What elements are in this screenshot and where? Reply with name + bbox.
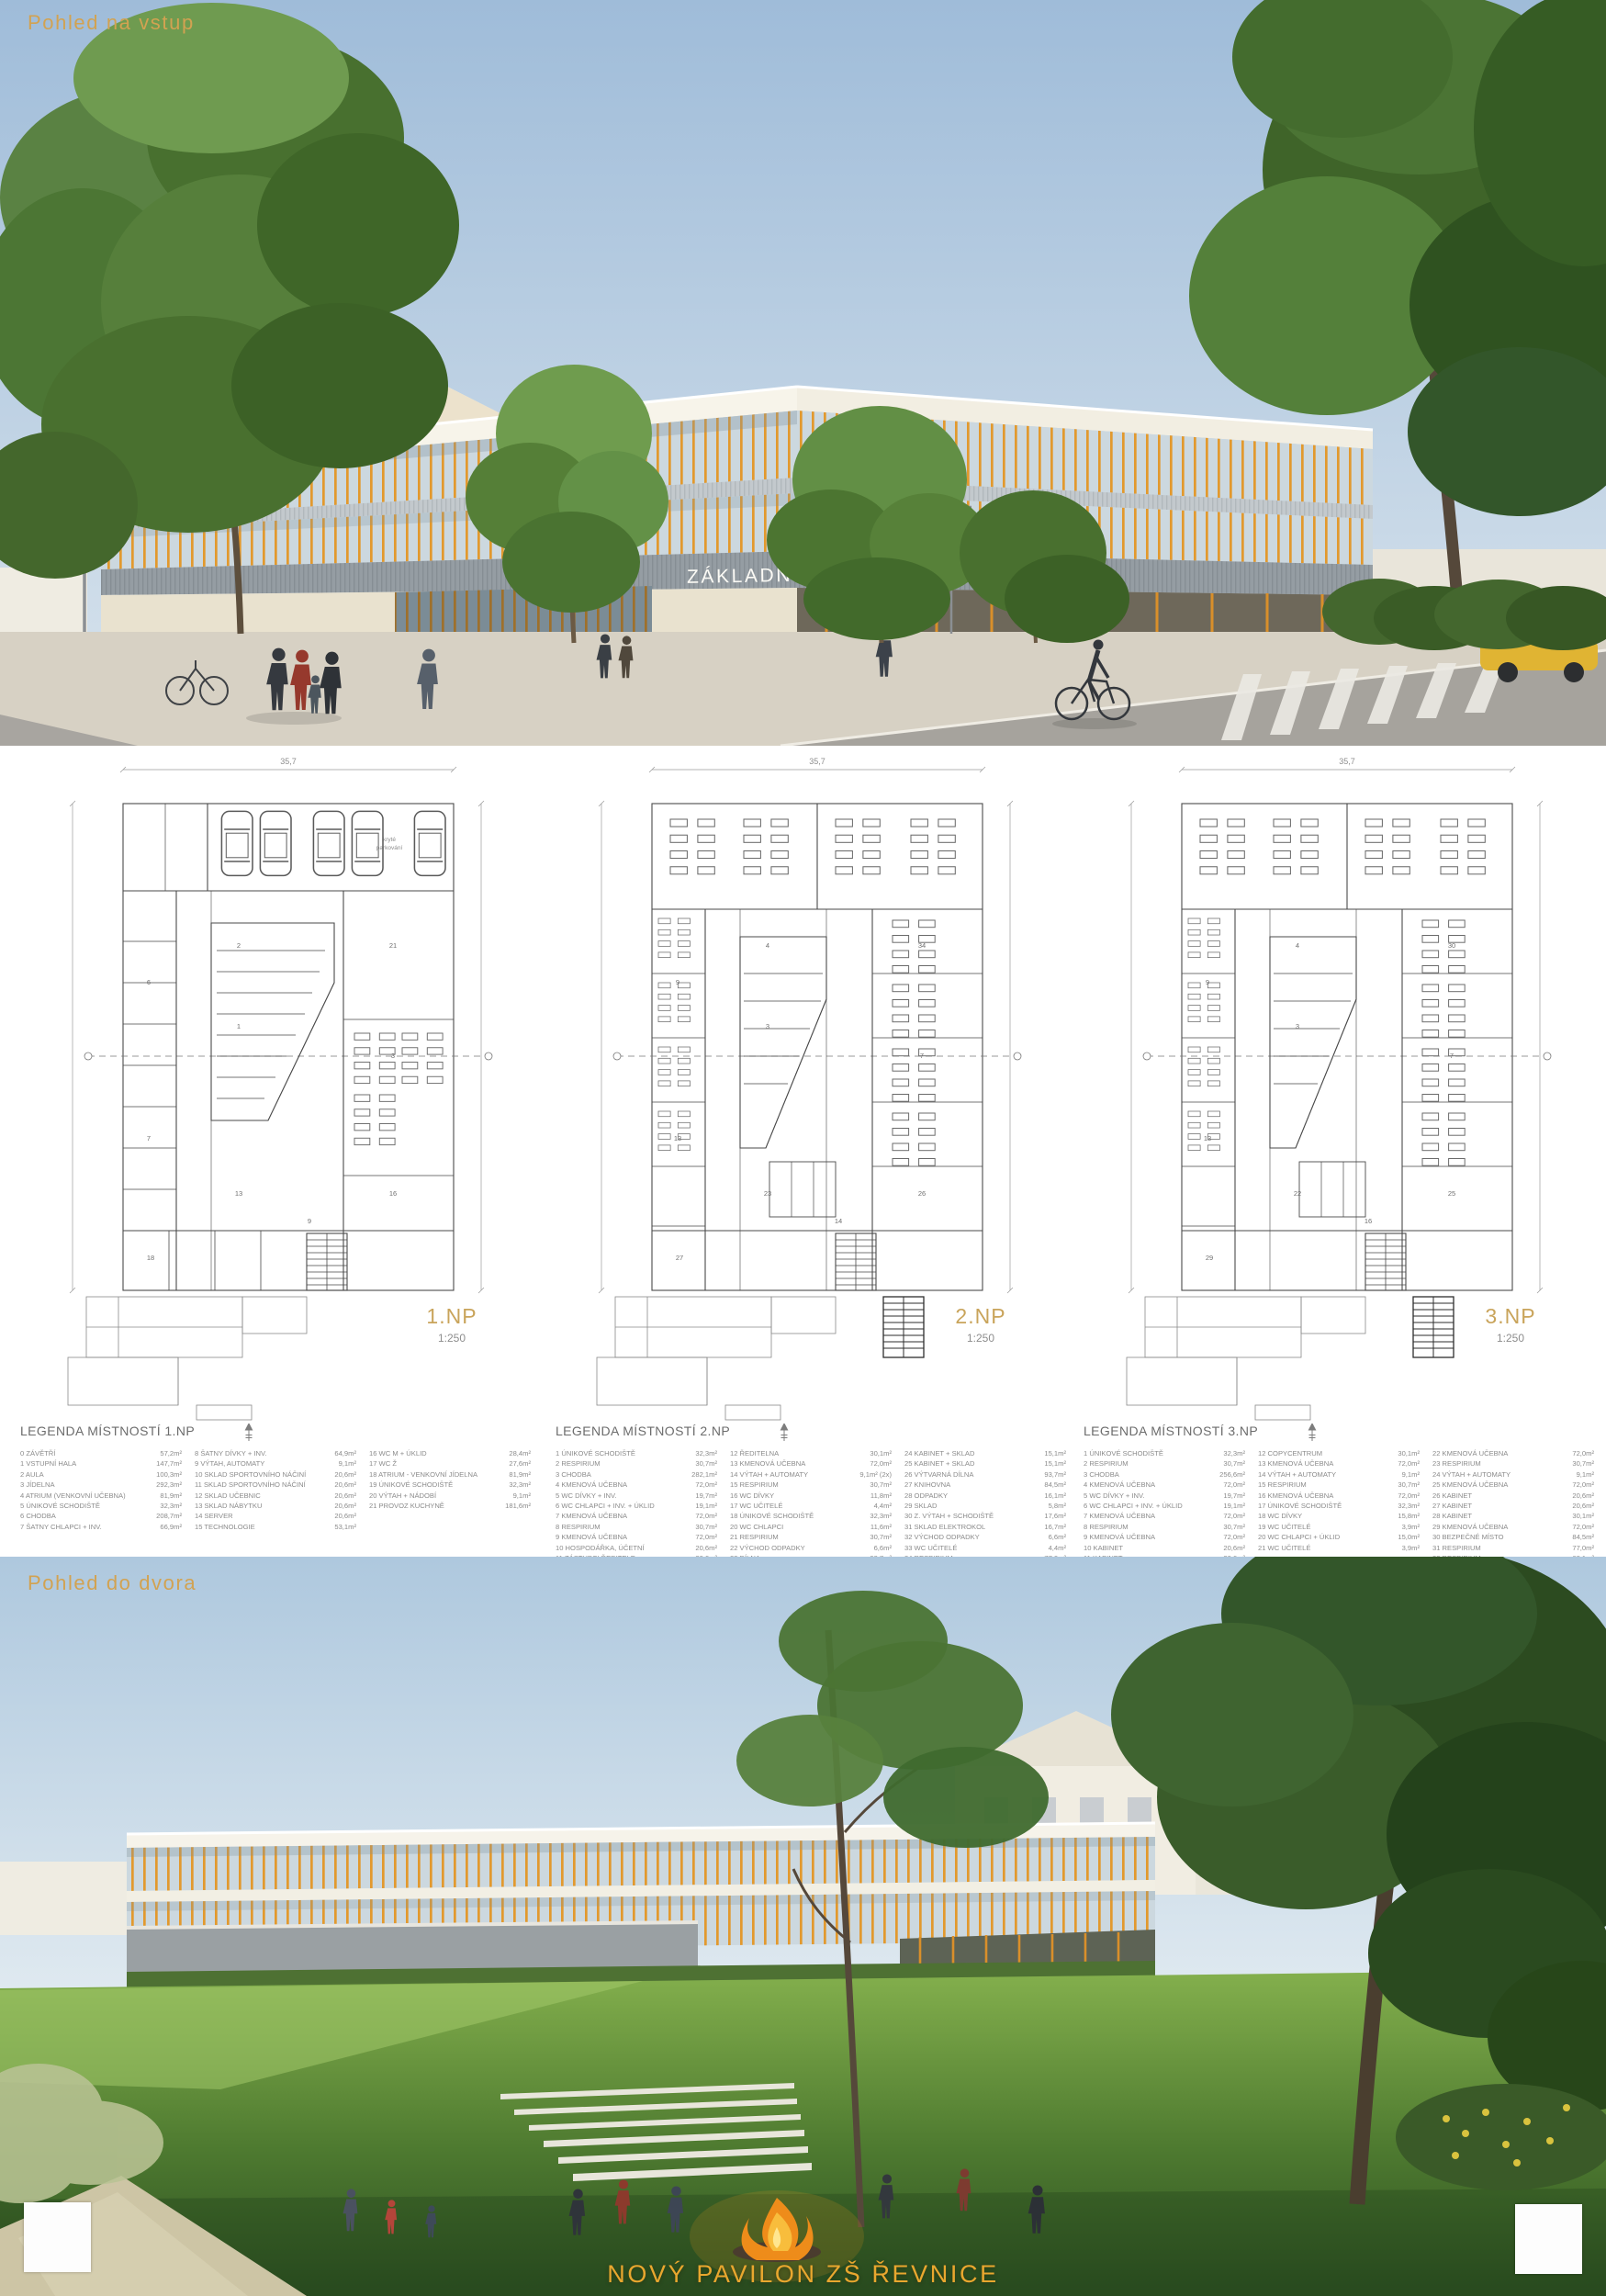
legend-row: 16 WC M + ÚKLID28,4m² — [369, 1448, 531, 1458]
legend-row: 6 CHODBA208,7m² — [20, 1511, 182, 1521]
legend-row: 8 RESPIRIUM30,7m² — [556, 1522, 717, 1532]
legend-row: 6 WC CHLAPCI + INV. + ÚKLID19,1m² — [556, 1501, 717, 1511]
room-number: 1 — [237, 1022, 241, 1030]
legend-row: 12 ŘEDITELNA30,1m² — [730, 1448, 892, 1458]
flower-bush — [1396, 2084, 1606, 2190]
legend-row: 10 SKLAD SPORTOVNÍHO NÁČINÍ20,6m² — [195, 1469, 356, 1480]
legend-row: 3 CHODBA282,1m² — [556, 1469, 717, 1480]
legend-row: 4 KMENOVÁ UČEBNA72,0m² — [1084, 1480, 1245, 1490]
room-number: 29 — [1206, 1254, 1213, 1262]
legend-row: 21 WC UČITELÉ3,9m² — [1258, 1543, 1420, 1553]
svg-text:parkování: parkování — [376, 845, 403, 851]
room-number: 3 — [1296, 1022, 1299, 1030]
legend-row: 15 TECHNOLOGIE53,1m² — [195, 1522, 356, 1532]
legend-row: 31 RESPIRIUM77,0m² — [1432, 1543, 1594, 1553]
room-number: 9 — [308, 1217, 311, 1225]
legend-column: 24 KABINET + SKLAD15,1m²25 KABINET + SKL… — [904, 1448, 1066, 1563]
legend-row: 17 WC Ž27,6m² — [369, 1458, 531, 1469]
room-number: 22 — [1294, 1189, 1301, 1198]
legend-row: 11 SKLAD SPORTOVNÍHO NÁČINÍ20,6m² — [195, 1480, 356, 1490]
legend-row: 9 KMENOVÁ UČEBNA72,0m² — [556, 1532, 717, 1542]
legend-row: 26 KABINET20,6m² — [1432, 1491, 1594, 1501]
dimension-label: 35,7 — [280, 757, 297, 766]
hedge-right — [1322, 579, 1606, 650]
legend-row: 13 KMENOVÁ UČEBNA72,0m² — [730, 1458, 892, 1469]
room-number: 4 — [766, 941, 769, 950]
legend-row: 24 VÝTAH + AUTOMATY9,1m² — [1432, 1469, 1594, 1480]
legend-row: 33 WC UČITELÉ4,4m² — [904, 1543, 1066, 1553]
legend-row: 7 KMENOVÁ UČEBNA72,0m² — [556, 1511, 717, 1521]
legend-row: 3 CHODBA256,6m² — [1084, 1469, 1245, 1480]
room-number: 18 — [147, 1254, 154, 1262]
legend-row: 28 KABINET30,1m² — [1432, 1511, 1594, 1521]
north-arrow-icon — [242, 1424, 255, 1442]
room-number: 27 — [676, 1254, 683, 1262]
room-number: 21 — [389, 941, 397, 950]
project-title: NOVÝ PAVILON ZŠ ŘEVNICE — [0, 2260, 1606, 2289]
legend-row: 9 VÝTAH, AUTOMATY9,1m² — [195, 1458, 356, 1469]
legend-row: 22 KMENOVÁ UČEBNA72,0m² — [1432, 1448, 1594, 1458]
legend-row: 13 KMENOVÁ UČEBNA72,0m² — [1258, 1458, 1420, 1469]
legend-row: 21 PROVOZ KUCHYNĚ181,6m² — [369, 1501, 531, 1511]
legend-row: 8 RESPIRIUM30,7m² — [1084, 1522, 1245, 1532]
legend-column: 1 ÚNIKOVÉ SCHODIŠTĚ32,3m²2 RESPIRIUM30,7… — [556, 1448, 717, 1563]
legend-column: 12 COPYCENTRUM30,1m²13 KMENOVÁ UČEBNA72,… — [1258, 1448, 1420, 1563]
legend-row: 10 HOSPODÁŘKA, ÚČETNÍ20,6m² — [556, 1543, 717, 1553]
room-number: 13 — [235, 1189, 242, 1198]
legend-row: 27 KABINET20,6m² — [1432, 1501, 1594, 1511]
presentation-board: Pohled na vstup — [0, 0, 1606, 2296]
room-number: 7 — [147, 1134, 151, 1142]
legend-row: 1 ÚNIKOVÉ SCHODIŠTĚ32,3m² — [556, 1448, 717, 1458]
legend-row: 18 ÚNIKOVÉ SCHODIŠTĚ32,3m² — [730, 1511, 892, 1521]
top-view-title: Pohled na vstup — [28, 11, 195, 35]
legend-column: 16 WC M + ÚKLID28,4m²17 WC Ž27,6m²18 ATR… — [369, 1448, 531, 1532]
legend-row: 17 WC UČITELÉ4,4m² — [730, 1501, 892, 1511]
legend-row: 19 ÚNIKOVÉ SCHODIŠTĚ32,3m² — [369, 1480, 531, 1490]
legend-2np: LEGENDA MÍSTNOSTÍ 2.NP 1 ÚNIKOVÉ SCHODIŠ… — [556, 1424, 1066, 1563]
room-number: 14 — [835, 1217, 842, 1225]
room-number: 16 — [1365, 1217, 1372, 1225]
legend-row: 7 ŠATNY CHLAPCI + INV.66,9m² — [20, 1522, 182, 1532]
legend-row: 8 ŠATNY DÍVKY + INV.64,9m² — [195, 1448, 356, 1458]
legend-row: 21 RESPIRIUM30,7m² — [730, 1532, 892, 1542]
room-number: 2 — [237, 941, 241, 950]
legend-3np: LEGENDA MÍSTNOSTÍ 3.NP 1 ÚNIKOVÉ SCHODIŠ… — [1084, 1424, 1594, 1563]
floor-plans-section: 35,7 kryté parkování 12367131618219 1.NP… — [0, 746, 1606, 1557]
legend-row: 18 ATRIUM - VENKOVNÍ JÍDELNA81,9m² — [369, 1469, 531, 1480]
legend-row: 30 BEZPEČNÉ MÍSTO84,5m² — [1432, 1532, 1594, 1542]
legend-row: 5 ÚNIKOVÉ SCHODIŠTĚ32,3m² — [20, 1501, 182, 1511]
legend-row: 10 KABINET20,6m² — [1084, 1543, 1245, 1553]
legend-row: 27 KNIHOVNA84,5m² — [904, 1480, 1066, 1490]
room-number: 7 — [1450, 1052, 1454, 1060]
legend-row: 3 JÍDELNA292,3m² — [20, 1480, 182, 1490]
plan-label-1np: 1.NP 1:250 — [406, 1304, 498, 1345]
legend-row: 5 WC DÍVKY + INV.19,7m² — [1084, 1491, 1245, 1501]
legend-row: 22 VÝCHOD ODPADKY6,6m² — [730, 1543, 892, 1553]
legend-row: 12 COPYCENTRUM30,1m² — [1258, 1448, 1420, 1458]
legend-row: 29 SKLAD5,8m² — [904, 1501, 1066, 1511]
legend-row: 15 RESPIRIUM30,7m² — [730, 1480, 892, 1490]
room-number: 16 — [389, 1189, 397, 1198]
pavilion-building — [127, 1823, 1155, 2001]
legend-title: LEGENDA MÍSTNOSTÍ 1.NP — [20, 1424, 531, 1438]
legend-row: 2 RESPIRIUM30,7m² — [556, 1458, 717, 1469]
legend-row: 18 WC DÍVKY15,8m² — [1258, 1511, 1420, 1521]
courtyard-render-view: Pohled do dvora — [0, 1557, 1606, 2296]
dimension-label: 35,7 — [809, 757, 825, 766]
legend-row: 17 ÚNIKOVÉ SCHODIŠTĚ32,3m² — [1258, 1501, 1420, 1511]
legend-title: LEGENDA MÍSTNOSTÍ 3.NP — [1084, 1424, 1594, 1438]
legend-row: 2 RESPIRIUM30,7m² — [1084, 1458, 1245, 1469]
legend-column: 0 ZÁVĚTŘÍ57,2m²1 VSTUPNÍ HALA147,7m²2 AU… — [20, 1448, 182, 1532]
legend-row: 6 WC CHLAPCI + INV. + ÚKLID19,1m² — [1084, 1501, 1245, 1511]
legend-row: 31 SKLAD ELEKTROKOL16,7m² — [904, 1522, 1066, 1532]
legend-row: 25 KMENOVÁ UČEBNA72,0m² — [1432, 1480, 1594, 1490]
legend-row: 20 VÝTAH + NÁDOBÍ9,1m² — [369, 1491, 531, 1501]
legend-row: 14 VÝTAH + AUTOMATY9,1m² (2x) — [730, 1469, 892, 1480]
legend-row: 13 SKLAD NÁBYTKU20,6m² — [195, 1501, 356, 1511]
dimension-label: 35,7 — [1339, 757, 1355, 766]
legend-row: 1 VSTUPNÍ HALA147,7m² — [20, 1458, 182, 1469]
room-number: 6 — [147, 978, 151, 986]
legend-column: 1 ÚNIKOVÉ SCHODIŠTĚ32,3m²2 RESPIRIUM30,7… — [1084, 1448, 1245, 1563]
courtyard-render-illustration — [0, 1557, 1606, 2296]
legend-row: 28 ODPADKY16,1m² — [904, 1491, 1066, 1501]
background-wall — [0, 1862, 136, 1935]
legend-row: 16 KMENOVÁ UČEBNA72,0m² — [1258, 1491, 1420, 1501]
legend-row: 19 WC UČITELÉ3,9m² — [1258, 1522, 1420, 1532]
legend-row: 23 RESPIRIUM30,7m² — [1432, 1458, 1594, 1469]
room-number: 13 — [1204, 1134, 1211, 1142]
plan-label-2np: 2.NP 1:250 — [935, 1304, 1027, 1345]
room-number: 13 — [674, 1134, 681, 1142]
plan-label-3np: 3.NP 1:250 — [1465, 1304, 1556, 1345]
legend-title: LEGENDA MÍSTNOSTÍ 2.NP — [556, 1424, 1066, 1438]
parking-label: kryté — [383, 837, 396, 843]
legend-column: 12 ŘEDITELNA30,1m²13 KMENOVÁ UČEBNA72,0m… — [730, 1448, 892, 1563]
room-number: 30 — [1448, 941, 1455, 950]
legend-row: 1 ÚNIKOVÉ SCHODIŠTĚ32,3m² — [1084, 1448, 1245, 1458]
legend-row: 25 KABINET + SKLAD15,1m² — [904, 1458, 1066, 1469]
room-number: 23 — [764, 1189, 771, 1198]
entrance-render-illustration: ZÁKLADNÍ ŠKOLA ŘEVNICE — [0, 0, 1606, 746]
legend-row: 0 ZÁVĚTŘÍ57,2m² — [20, 1448, 182, 1458]
legend-row: 20 WC CHLAPCI11,6m² — [730, 1522, 892, 1532]
legend-row: 2 AULA100,3m² — [20, 1469, 182, 1480]
room-number: 9 — [1206, 978, 1209, 986]
legend-row: 24 KABINET + SKLAD15,1m² — [904, 1448, 1066, 1458]
legend-row: 15 RESPIRIUM30,7m² — [1258, 1480, 1420, 1490]
top-render-view: Pohled na vstup — [0, 0, 1606, 746]
legend-row: 32 VÝCHOD ODPADKY6,6m² — [904, 1532, 1066, 1542]
room-number: 9 — [676, 978, 679, 986]
legend-row: 26 VÝTVARNÁ DÍLNA93,7m² — [904, 1469, 1066, 1480]
legend-row: 4 ATRIUM (VENKOVNÍ UČEBNA)81,9m² — [20, 1491, 182, 1501]
legend-row: 12 SKLAD UČEBNIC20,6m² — [195, 1491, 356, 1501]
room-number: 25 — [1448, 1189, 1455, 1198]
room-number: 34 — [918, 941, 926, 950]
legend-row: 30 Z. VÝTAH + SCHODIŠTĚ17,6m² — [904, 1511, 1066, 1521]
street-ground — [0, 632, 1606, 746]
legend-column: 22 KMENOVÁ UČEBNA72,0m²23 RESPIRIUM30,7m… — [1432, 1448, 1594, 1563]
legend-row: 14 SERVER20,6m² — [195, 1511, 356, 1521]
legend-row: 9 KMENOVÁ UČEBNA72,0m² — [1084, 1532, 1245, 1542]
legend-row: 16 WC DÍVKY11,8m² — [730, 1491, 892, 1501]
legend-row: 14 VÝTAH + AUTOMATY9,1m² — [1258, 1469, 1420, 1480]
legend-row: 4 KMENOVÁ UČEBNA72,0m² — [556, 1480, 717, 1490]
room-number: 3 — [391, 1052, 395, 1060]
room-number: 3 — [766, 1022, 769, 1030]
room-number: 7 — [920, 1052, 924, 1060]
legend-column: 8 ŠATNY DÍVKY + INV.64,9m²9 VÝTAH, AUTOM… — [195, 1448, 356, 1532]
floor-plan-2np: 35,7 3479132326273414 2.NP 1:250 — [560, 753, 1047, 1430]
room-number: 4 — [1296, 941, 1299, 950]
legend-row: 5 WC DÍVKY + INV.19,7m² — [556, 1491, 717, 1501]
legend-1np: LEGENDA MÍSTNOSTÍ 1.NP 0 ZÁVĚTŘÍ57,2m²1 … — [20, 1424, 531, 1532]
legend-row: 7 KMENOVÁ UČEBNA72,0m² — [1084, 1511, 1245, 1521]
legend-row: 29 KMENOVÁ UČEBNA72,0m² — [1432, 1522, 1594, 1532]
north-arrow-icon — [778, 1424, 791, 1442]
bottom-view-title: Pohled do dvora — [28, 1571, 197, 1595]
north-arrow-icon — [1306, 1424, 1319, 1442]
floor-plan-3np: 35,7 3479132225293016 3.NP 1:250 — [1090, 753, 1577, 1430]
legend-row: 20 WC CHLAPCI + ÚKLID15,0m² — [1258, 1532, 1420, 1542]
floor-plan-1np: 35,7 kryté parkování 12367131618219 1.NP… — [31, 753, 518, 1430]
room-number: 26 — [918, 1189, 926, 1198]
